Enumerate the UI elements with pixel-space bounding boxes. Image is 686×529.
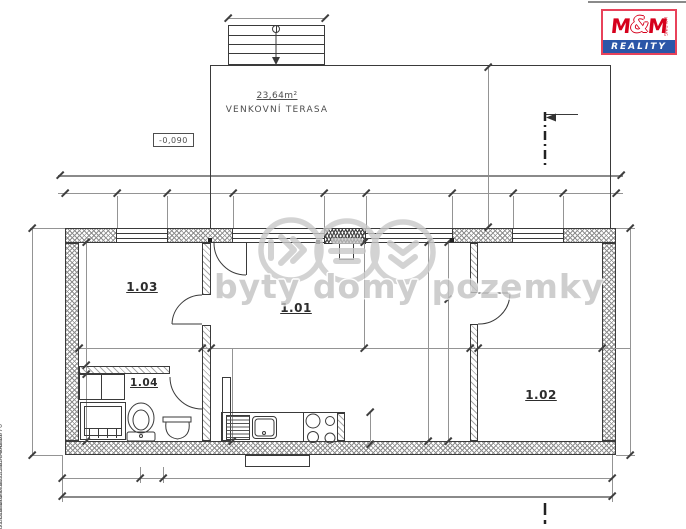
drawing-line <box>610 65 611 228</box>
drawing-line <box>101 374 102 400</box>
dimension-line <box>366 196 367 228</box>
terrace-name: VENKOVNÍ TERASA <box>226 105 329 115</box>
dimension-line <box>428 242 429 441</box>
dimension-line <box>30 455 62 456</box>
washbasin-bowl <box>166 422 190 439</box>
logo-holding-text: HOLDING <box>663 17 668 36</box>
room-label-101: 1.01 <box>280 301 312 315</box>
room-label-103: 1.03 <box>126 280 158 294</box>
drawing-line <box>221 412 345 413</box>
frame-edge-line <box>588 1 686 3</box>
drawing-line <box>210 65 610 66</box>
dimension-line <box>370 412 371 444</box>
mm-reality-logo: M&M REALITY HOLDING <box>601 9 677 55</box>
drawing-line <box>107 428 108 438</box>
window-frame-line <box>117 233 167 234</box>
washbasin-rim <box>163 417 191 422</box>
drawing-line <box>246 243 247 275</box>
dimension-line <box>79 348 630 349</box>
drawing-line <box>221 412 222 441</box>
wall-segment <box>452 228 513 243</box>
terrace-area: 23,64m² <box>257 91 298 101</box>
toilet-button <box>140 435 143 438</box>
window <box>233 228 324 243</box>
dimension-line <box>448 242 449 441</box>
utility-closet <box>79 374 125 400</box>
logo-m-left: M <box>610 16 631 36</box>
drawing-line <box>228 35 325 36</box>
drawing-line <box>210 65 211 228</box>
dimension-line <box>58 193 623 194</box>
drawing-line <box>228 44 325 45</box>
wall-segment <box>602 243 616 441</box>
dimension-line <box>513 196 514 228</box>
dimension-line <box>32 228 33 455</box>
dimension-line <box>228 18 325 19</box>
toilet-bowl-inner <box>133 410 149 430</box>
room-label-104: 1.04 <box>130 377 158 389</box>
wall-segment <box>563 228 616 243</box>
stove-label: sporák <box>0 316 343 323</box>
dish-rack <box>226 415 250 440</box>
wall-segment <box>65 228 117 243</box>
section-label: A <box>0 3 6 529</box>
dimension-line <box>117 196 118 228</box>
dimension-line <box>30 228 65 229</box>
window <box>117 228 167 243</box>
drawing-line <box>276 25 277 33</box>
wall-segment <box>202 325 211 441</box>
dimension-line <box>58 175 623 177</box>
stove-burner <box>326 417 335 426</box>
floor-plan-drawing: M&M REALITY HOLDING 23,64m² VENKOVNÍ TER… <box>0 0 686 529</box>
dimension-line <box>616 455 635 456</box>
window-frame-line <box>513 238 563 239</box>
wall-segment <box>167 228 233 243</box>
wall-segment <box>324 228 366 244</box>
door-arc-104 <box>170 377 202 409</box>
drawing-line <box>116 428 117 438</box>
window-frame-line <box>366 233 452 234</box>
logo-reality-bar: REALITY <box>603 40 675 53</box>
dimension-line <box>563 196 564 228</box>
wall-segment <box>79 366 170 374</box>
dimension-tick <box>617 171 625 179</box>
window-frame-line <box>117 238 167 239</box>
toilet-bowl <box>128 403 154 433</box>
wall-segment <box>202 243 211 295</box>
dimension-line <box>616 228 635 229</box>
drawing-line <box>98 428 99 438</box>
entrance-door-leaf <box>339 243 354 260</box>
wall-segment <box>470 324 478 441</box>
kitchen-sink <box>252 416 277 439</box>
terrace-level-mark: -0,090 <box>153 133 194 147</box>
window-frame-line <box>233 233 324 234</box>
window-frame-line <box>233 238 324 239</box>
wall-segment <box>470 243 478 293</box>
drawing-line <box>228 53 325 54</box>
drawing-line <box>303 413 304 441</box>
dimension-line <box>630 228 631 455</box>
wall-segment <box>337 413 345 441</box>
stove-burner <box>306 414 320 428</box>
toilet-tank <box>127 432 155 441</box>
window <box>513 228 563 243</box>
drawing-line <box>546 114 578 115</box>
window-frame-line <box>366 238 452 239</box>
dimension-line <box>324 196 325 228</box>
wall-segment <box>65 441 616 455</box>
logo-ampersand: & <box>629 15 649 37</box>
dimension-line <box>167 196 168 228</box>
dimension-line <box>233 196 234 228</box>
room-label-102: 1.02 <box>525 388 557 402</box>
wall-segment <box>65 243 79 441</box>
distribution-board-label: R <box>0 323 343 335</box>
exterior-step <box>245 455 310 467</box>
door-arc-102 <box>478 293 510 324</box>
window <box>366 228 452 243</box>
dimension-line <box>488 67 489 228</box>
dimension-line <box>364 242 365 348</box>
dimension-line <box>452 196 453 228</box>
window-frame-line <box>513 233 563 234</box>
dimension-line <box>62 496 612 498</box>
dimension-line <box>62 478 612 479</box>
